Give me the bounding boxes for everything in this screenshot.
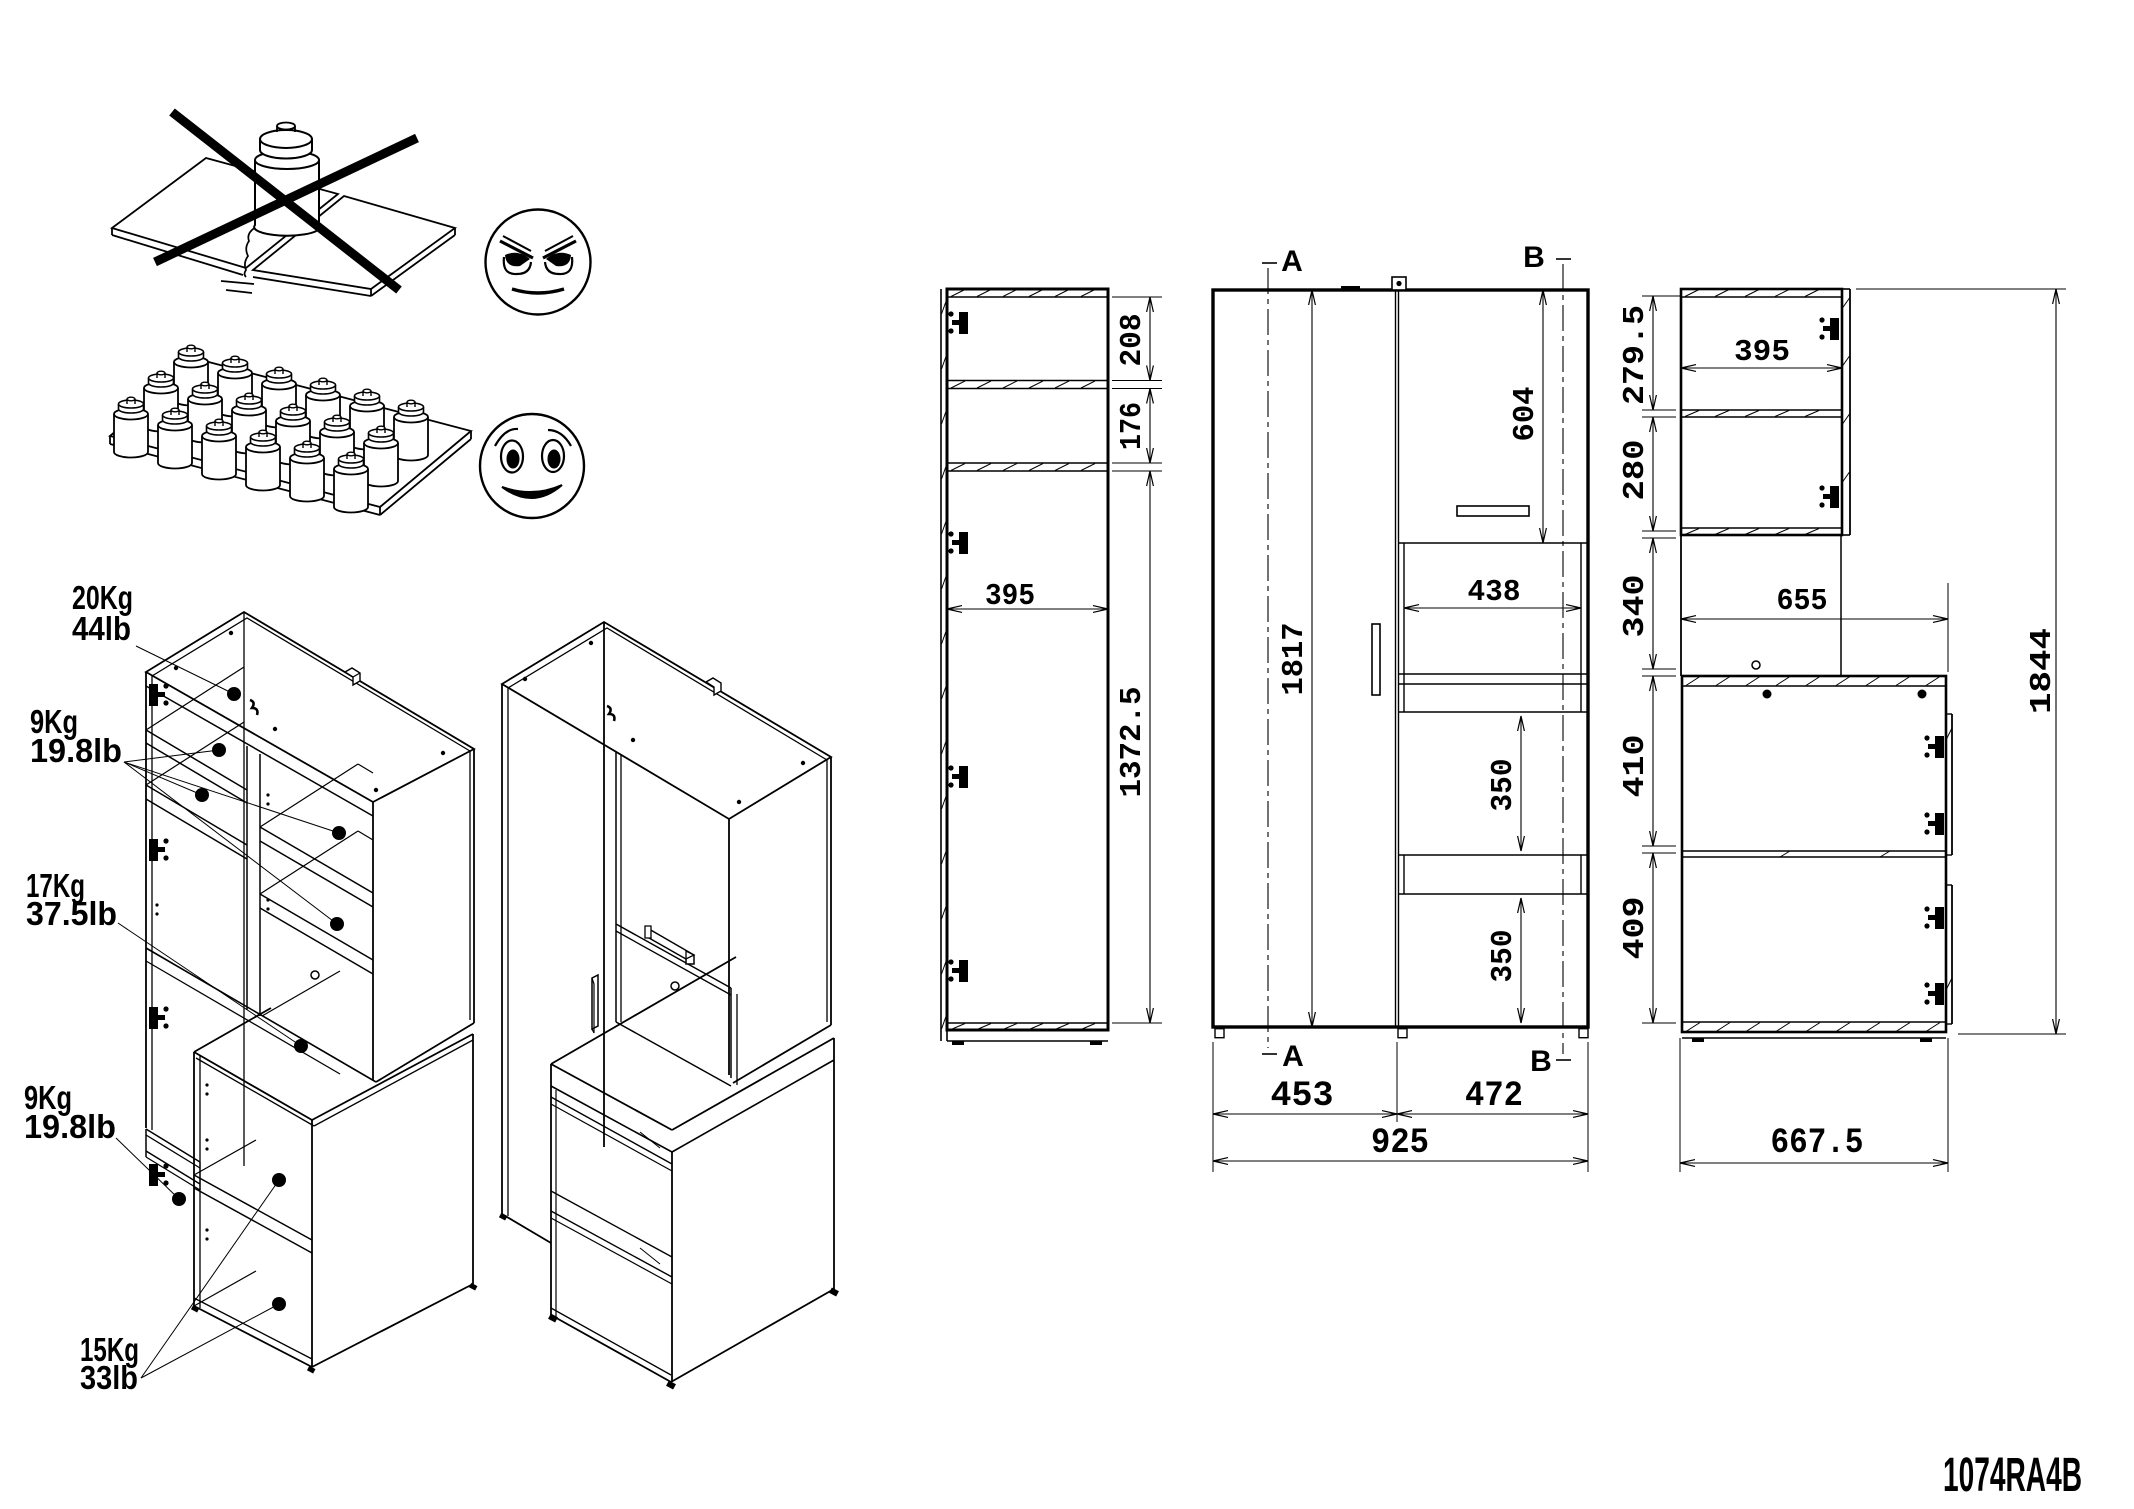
svg-text:280: 280 (1618, 440, 1653, 501)
svg-text:208: 208 (1115, 314, 1150, 367)
svg-text:472: 472 (1465, 1076, 1523, 1116)
svg-text:604: 604 (1508, 387, 1543, 442)
svg-text:453: 453 (1271, 1076, 1334, 1116)
svg-text:44lb: 44lb (72, 610, 131, 647)
svg-text:A: A (1281, 245, 1303, 278)
svg-text:410: 410 (1618, 735, 1653, 798)
svg-text:438: 438 (1468, 575, 1521, 610)
svg-text:350: 350 (1486, 930, 1521, 983)
svg-text:1817: 1817 (1277, 623, 1312, 696)
svg-text:176: 176 (1115, 402, 1150, 450)
svg-text:395: 395 (1734, 335, 1790, 370)
svg-text:1372.5: 1372.5 (1115, 687, 1150, 798)
svg-text:667.5: 667.5 (1771, 1123, 1864, 1163)
svg-text:A: A (1282, 1040, 1304, 1073)
svg-text:B: B (1530, 1045, 1552, 1078)
svg-text:340: 340 (1618, 575, 1653, 638)
svg-text:33lb: 33lb (80, 1359, 138, 1396)
svg-text:B: B (1523, 241, 1545, 274)
svg-text:37.5lb: 37.5lb (26, 895, 117, 932)
svg-text:350: 350 (1486, 759, 1521, 812)
svg-text:925: 925 (1371, 1123, 1429, 1163)
svg-text:1074RA4B: 1074RA4B (1943, 1449, 2082, 1502)
svg-text:19.8lb: 19.8lb (30, 732, 122, 769)
svg-text:279.5: 279.5 (1618, 305, 1653, 405)
svg-text:409: 409 (1618, 897, 1653, 960)
svg-text:1844: 1844 (2025, 628, 2060, 714)
svg-text:395: 395 (985, 579, 1035, 614)
svg-text:19.8lb: 19.8lb (24, 1108, 116, 1145)
svg-text:655: 655 (1777, 584, 1828, 619)
